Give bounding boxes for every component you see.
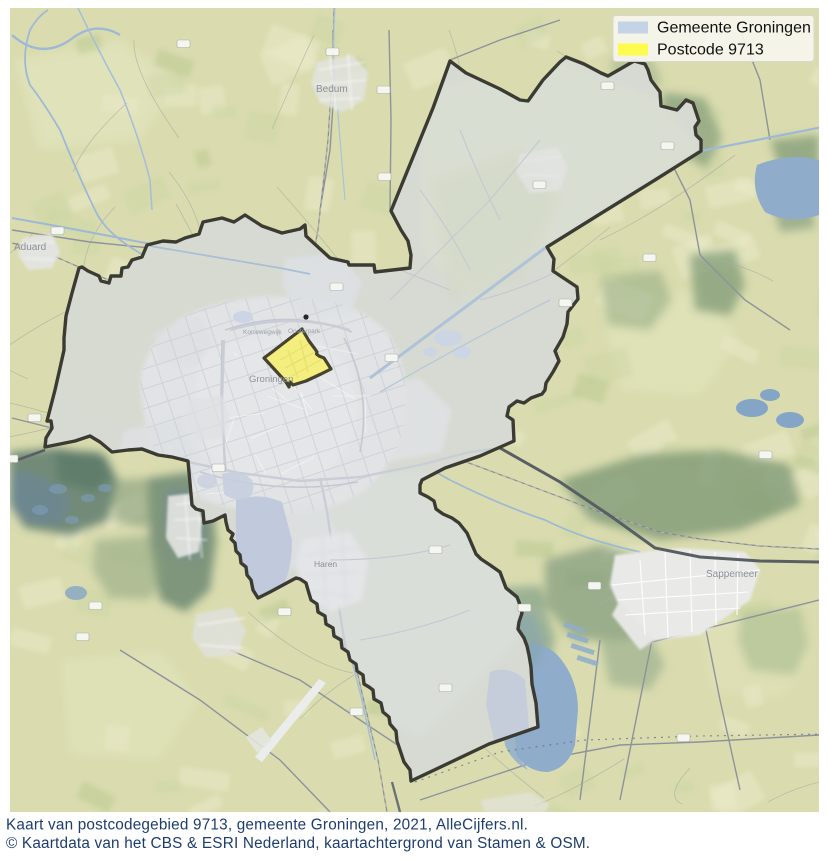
svg-text:Bedum: Bedum: [316, 84, 348, 95]
svg-text:Gemeente Groningen: Gemeente Groningen: [657, 20, 811, 37]
svg-text:Postcode 9713: Postcode 9713: [657, 42, 764, 59]
svg-text:Haren: Haren: [314, 559, 337, 569]
svg-text:Aduard: Aduard: [14, 242, 46, 253]
svg-text:Oosterpark: Oosterpark: [288, 328, 321, 335]
svg-text:Groningen: Groningen: [249, 374, 293, 385]
svg-text:Korrewegwijk: Korrewegwijk: [243, 329, 282, 336]
svg-text:Sappemeer: Sappemeer: [706, 569, 758, 580]
svg-text:© Kaartdata van het CBS & ESRI: © Kaartdata van het CBS & ESRI Nederland…: [6, 835, 590, 852]
svg-text:Kaart van postcodegebied 9713,: Kaart van postcodegebied 9713, gemeente …: [6, 817, 528, 834]
